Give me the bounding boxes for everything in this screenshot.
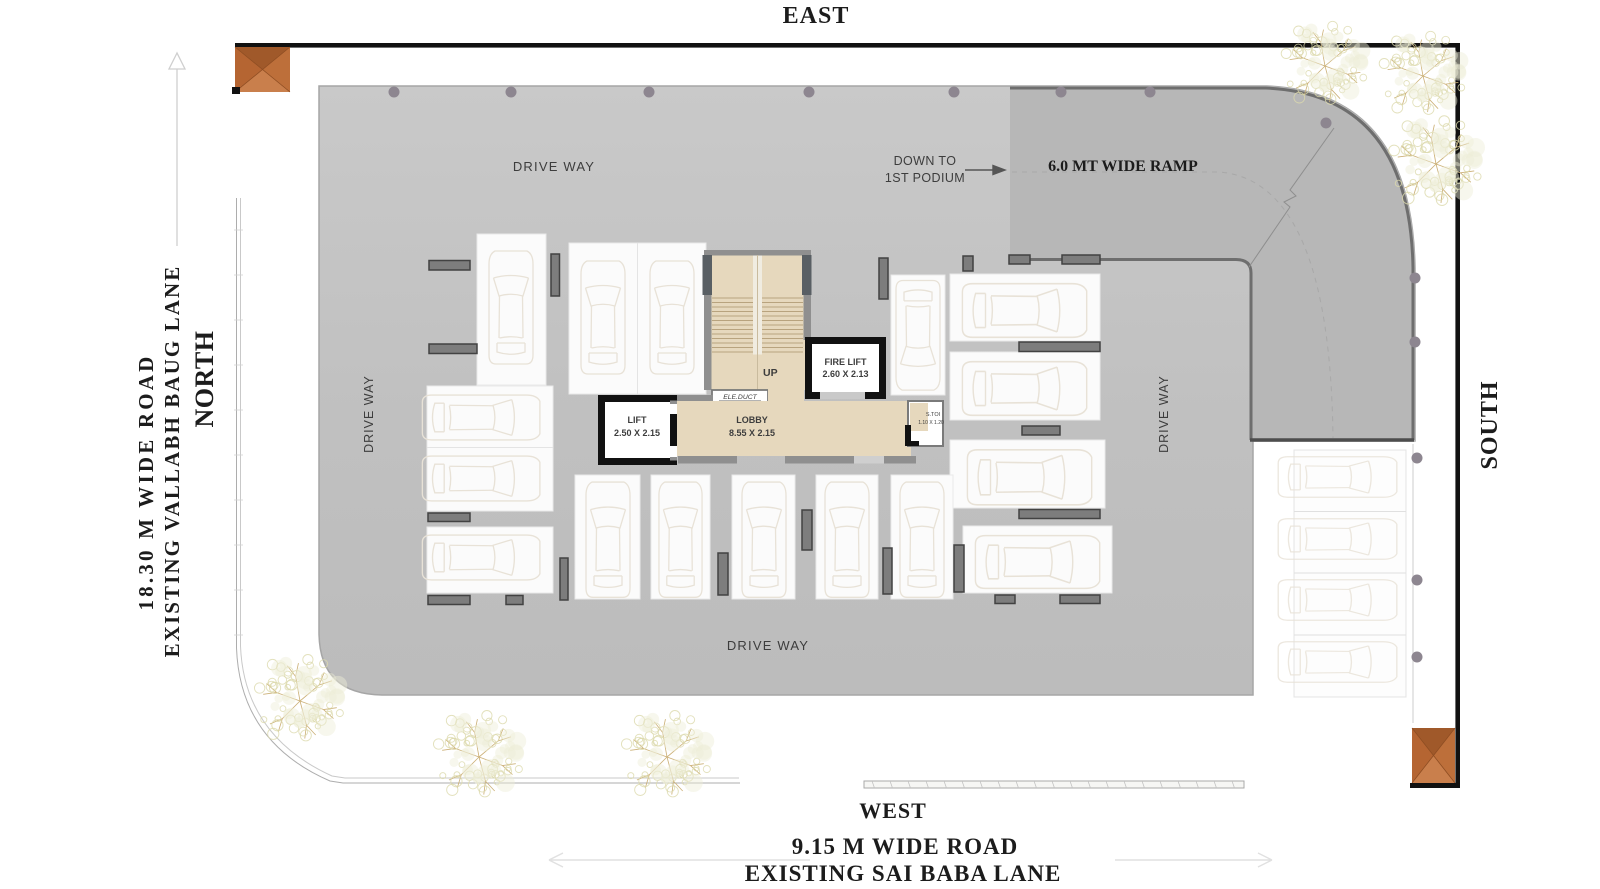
svg-text:6.0 MT WIDE RAMP: 6.0 MT WIDE RAMP — [1048, 158, 1198, 175]
svg-text:EAST: EAST — [783, 3, 850, 29]
svg-text:EXISTING SAI BABA LANE: EXISTING SAI BABA LANE — [745, 861, 1062, 886]
svg-text:UP: UP — [763, 367, 778, 379]
svg-text:2.60 X 2.13: 2.60 X 2.13 — [822, 369, 868, 379]
svg-text:18.30 M WIDE ROAD: 18.30 M WIDE ROAD — [134, 353, 158, 610]
svg-text:ELE.DUCT: ELE.DUCT — [723, 394, 757, 401]
svg-text:SOUTH: SOUTH — [1477, 380, 1503, 469]
svg-text:1.10 X 1.20: 1.10 X 1.20 — [918, 420, 944, 426]
svg-text:LIFT: LIFT — [628, 415, 647, 425]
svg-text:DOWN TO: DOWN TO — [894, 154, 957, 168]
svg-text:EXISTING VALLABH BAUG LANE: EXISTING VALLABH BAUG LANE — [160, 265, 184, 658]
svg-text:WEST: WEST — [859, 798, 927, 823]
svg-text:FIRE LIFT: FIRE LIFT — [825, 357, 867, 367]
svg-text:2.50 X 2.15: 2.50 X 2.15 — [614, 428, 660, 438]
svg-text:9.15 M WIDE ROAD: 9.15 M WIDE ROAD — [792, 834, 1018, 859]
svg-text:NORTH: NORTH — [190, 331, 219, 428]
svg-text:DRIVE WAY: DRIVE WAY — [1157, 375, 1171, 453]
svg-text:S.TOI: S.TOI — [926, 412, 941, 418]
svg-text:LOBBY: LOBBY — [736, 415, 768, 425]
svg-text:1ST PODIUM: 1ST PODIUM — [885, 171, 965, 185]
svg-text:DRIVE WAY: DRIVE WAY — [362, 375, 376, 453]
svg-text:DRIVE WAY: DRIVE WAY — [513, 159, 595, 174]
svg-text:DRIVE WAY: DRIVE WAY — [727, 638, 809, 653]
svg-text:8.55 X 2.15: 8.55 X 2.15 — [729, 428, 775, 438]
